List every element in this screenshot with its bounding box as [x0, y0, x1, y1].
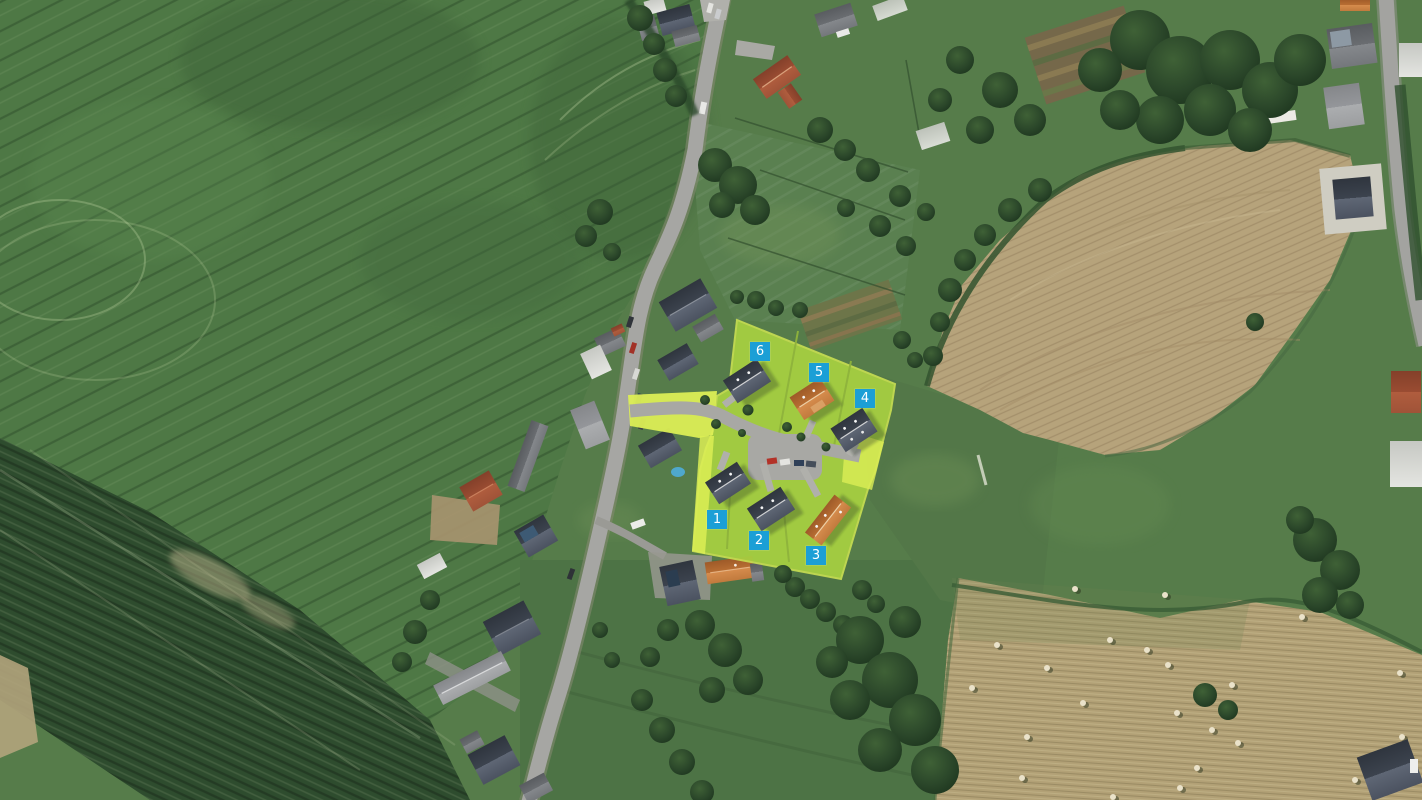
field-tan-northeast	[927, 140, 1362, 456]
aerial-site-plan: 1 2 3 4 5 6	[0, 0, 1422, 800]
plot-marker-1[interactable]: 1	[707, 510, 727, 529]
plot-marker-5[interactable]: 5	[809, 363, 829, 382]
plot-marker-3[interactable]: 3	[806, 546, 826, 565]
satellite-terrain	[0, 0, 1422, 800]
farm-driveway	[700, 0, 730, 22]
house-parking-north	[735, 40, 775, 60]
plot-marker-2[interactable]: 2	[749, 531, 769, 550]
plot-marker-4[interactable]: 4	[855, 389, 875, 408]
plot-marker-6[interactable]: 6	[750, 342, 770, 361]
